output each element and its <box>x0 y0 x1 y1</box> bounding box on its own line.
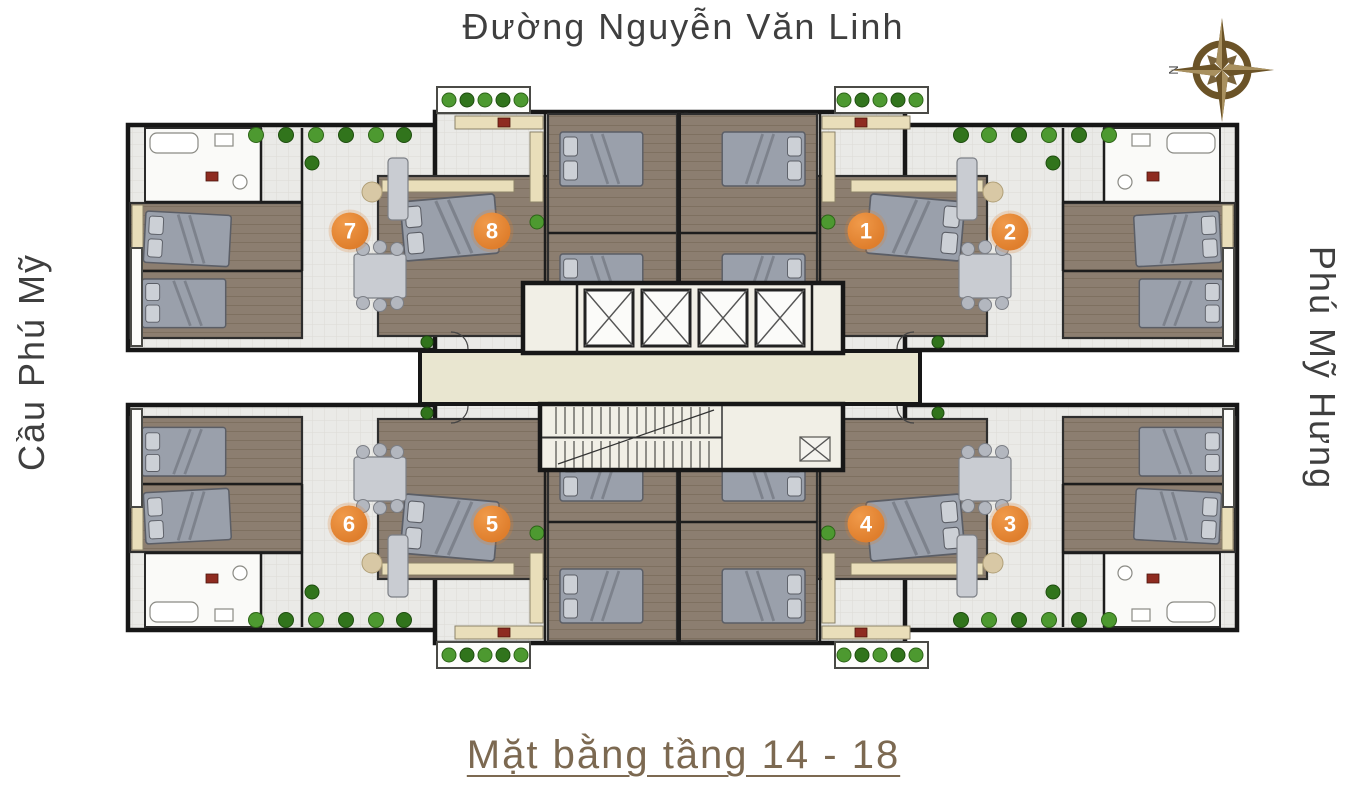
central-corridor <box>420 351 920 404</box>
floor-plan-drawing <box>0 0 1367 800</box>
staircase <box>540 404 843 470</box>
floor-plan-page: { "labels": { "top_street": "Đường Nguyễ… <box>0 0 1367 800</box>
elevator-core <box>523 283 843 353</box>
